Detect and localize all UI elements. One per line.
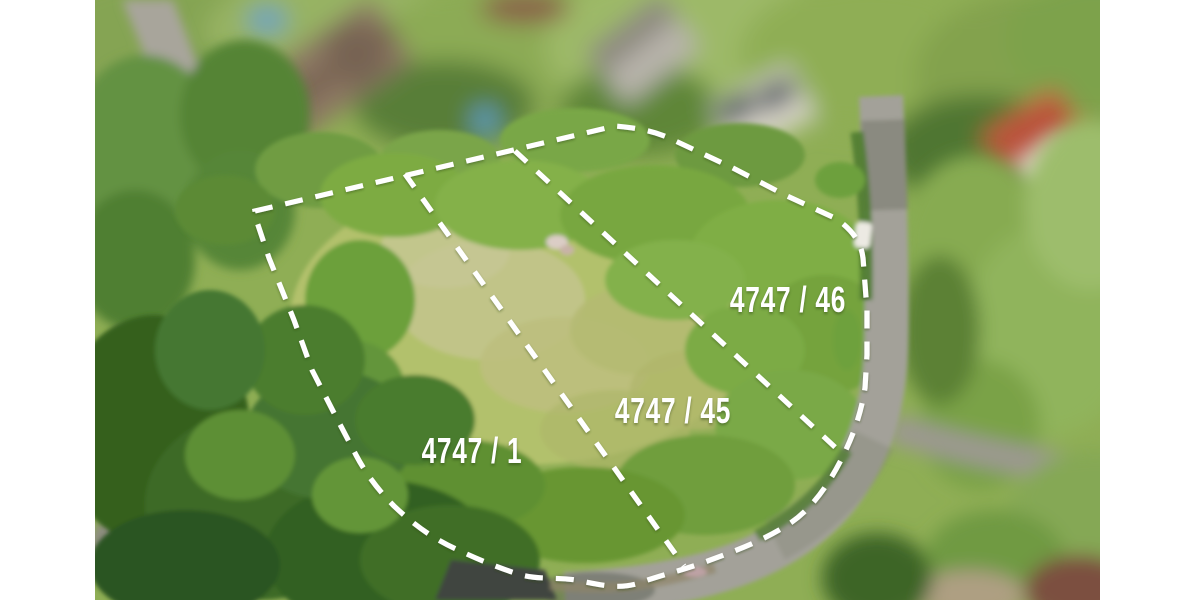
aerial-photo: 4747 / 46 4747 / 45 4747 / 1 bbox=[95, 0, 1100, 600]
parcel-label-4747-1: 4747 / 1 bbox=[422, 430, 523, 472]
screenshot-canvas: 4747 / 46 4747 / 45 4747 / 1 bbox=[0, 0, 1200, 600]
small-pool bbox=[472, 106, 498, 134]
parcel-label-4747-45: 4747 / 45 bbox=[615, 390, 731, 432]
swimming-pool bbox=[247, 7, 287, 33]
photo-scene bbox=[95, 0, 1100, 600]
parcel-label-4747-46: 4747 / 46 bbox=[730, 279, 846, 321]
